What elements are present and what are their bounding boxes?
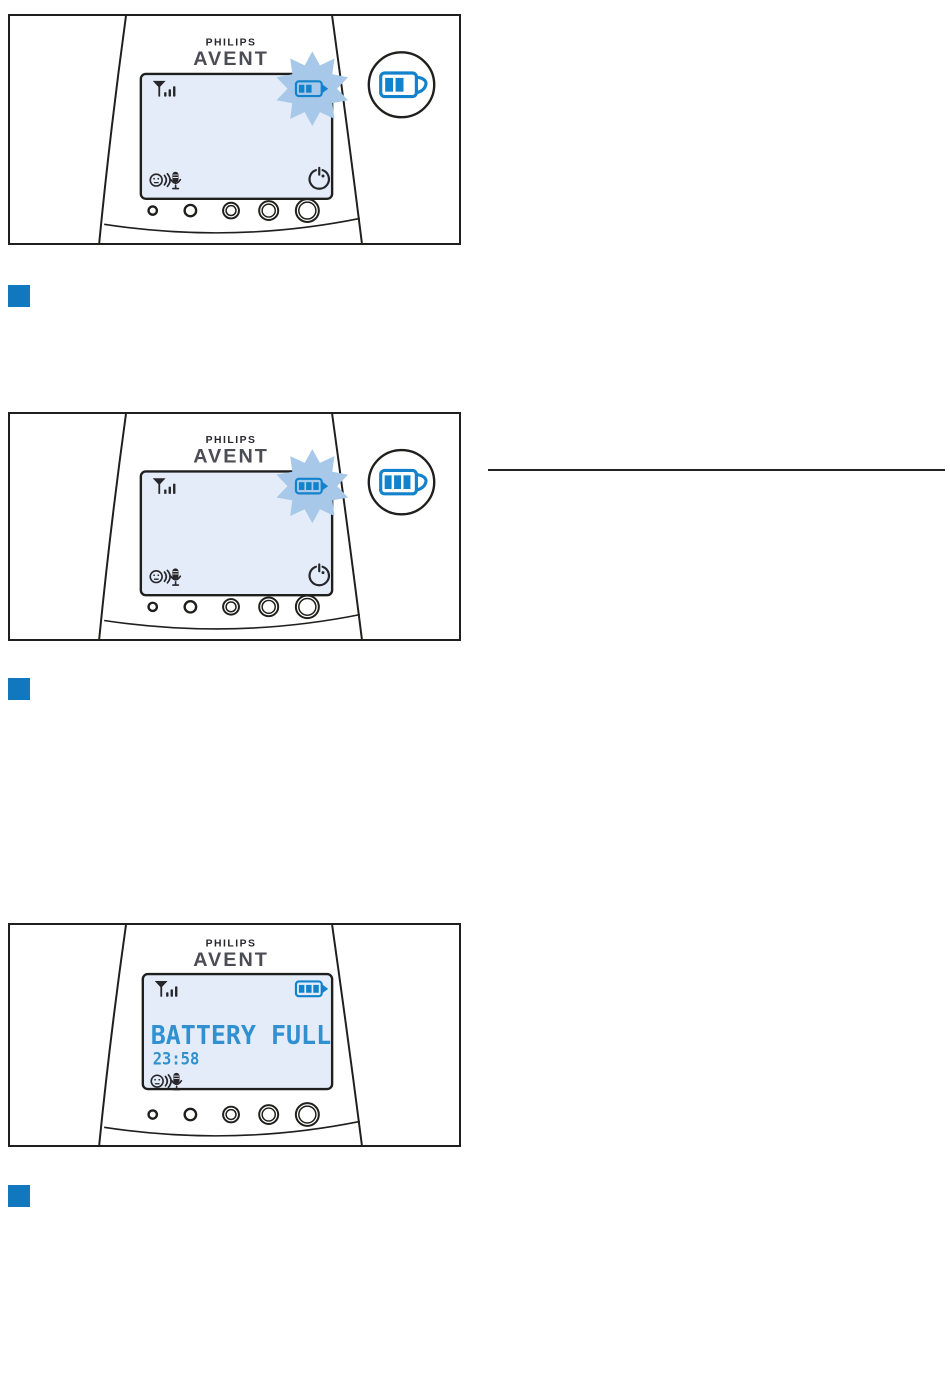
device-body-left [99, 16, 126, 243]
button-1 [149, 1110, 157, 1118]
button-5-inner [299, 202, 316, 219]
button-1 [149, 206, 157, 214]
button-3-inner [226, 206, 236, 216]
button-3-inner [226, 602, 236, 612]
device-body-right [332, 925, 362, 1145]
parent-unit-illustration-2: PHILIPS AVENT [10, 414, 459, 639]
button-2 [185, 1109, 196, 1120]
device-bottom-arc [104, 615, 360, 629]
philips-logo: PHILIPS [206, 939, 257, 950]
figure-frame-charging-full: PHILIPS AVENT [8, 412, 461, 641]
parent-unit-illustration-3: PHILIPS AVENT BATTERY FULL 23:58 [10, 925, 459, 1145]
device-body-right [332, 414, 362, 639]
device-bottom-arc [104, 1121, 360, 1135]
device-body-left [99, 414, 126, 639]
button-2 [185, 601, 196, 612]
manual-page: PHILIPS AVENT [0, 0, 950, 1397]
column-divider-rule [488, 469, 945, 471]
device-body-left [99, 925, 126, 1145]
device-bottom-arc [104, 218, 360, 232]
button-2 [185, 205, 196, 216]
philips-logo: PHILIPS [206, 38, 257, 49]
button-row [149, 1103, 319, 1126]
step-bullet-2 [8, 678, 30, 700]
lcd-message-text: BATTERY FULL [151, 1021, 331, 1051]
button-1 [149, 603, 157, 611]
button-4-inner [262, 1108, 275, 1121]
figure-frame-charging-low: PHILIPS AVENT [8, 14, 461, 245]
parent-unit-illustration-1: PHILIPS AVENT [10, 16, 459, 243]
step-bullet-3 [8, 1185, 30, 1207]
device-body-right [332, 16, 362, 243]
button-5-inner [299, 1106, 316, 1123]
philips-logo: PHILIPS [206, 435, 257, 446]
avent-logo: AVENT [193, 949, 269, 971]
figure-frame-battery-full-message: PHILIPS AVENT BATTERY FULL 23:58 [8, 923, 461, 1147]
button-row [149, 199, 319, 222]
button-row [149, 596, 319, 619]
avent-logo: AVENT [193, 446, 269, 468]
button-5-inner [299, 598, 316, 615]
button-3-inner [226, 1110, 236, 1120]
lcd-time-text: 23:58 [153, 1049, 200, 1069]
button-4-inner [262, 204, 275, 217]
avent-logo: AVENT [193, 48, 269, 70]
step-bullet-1 [8, 285, 30, 307]
button-4-inner [262, 600, 275, 613]
